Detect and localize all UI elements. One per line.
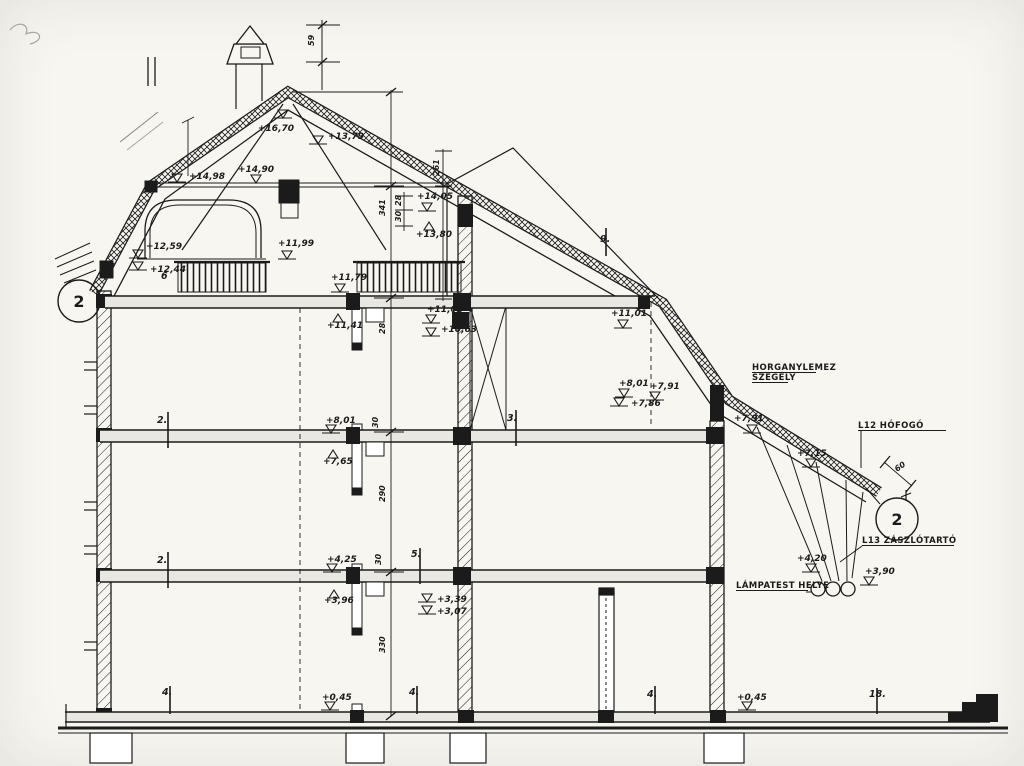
right-entry-steps <box>948 694 998 722</box>
elevation-value: +12,44 <box>150 265 186 275</box>
eave-plate-block <box>100 261 113 278</box>
elevation-marker: +8,01 <box>615 379 649 397</box>
dimension-value: 59 <box>307 34 316 46</box>
elevation-marker: +14,90 <box>238 165 274 183</box>
elevation-value: +13,79 <box>328 132 364 142</box>
elevation-marker: +4,20 <box>797 554 827 572</box>
building-section-drawing: +16,70+13,79+14,90+14,98+14,05+13,80+12,… <box>0 0 1024 766</box>
note-label: L12 HÓFOGÓ <box>858 419 946 431</box>
reference-number: 4. <box>408 687 419 698</box>
beam-boxes <box>366 308 384 596</box>
level-triangle-icon <box>864 577 874 585</box>
level-triangle-icon <box>806 564 816 572</box>
reference-number: 3. <box>507 413 517 424</box>
lintel <box>352 628 362 635</box>
elevation-value: +7,91 <box>650 382 680 392</box>
elevation-marker: +10,63 <box>422 325 477 336</box>
dimension-value: 28 <box>394 194 403 206</box>
reference-number: 18. <box>869 689 886 700</box>
elevation-value: +3,07 <box>437 607 467 617</box>
elevation-marker: +3,07 <box>418 606 467 617</box>
level-triangle-icon <box>742 702 752 710</box>
elevation-marker: +7,65 <box>323 450 353 467</box>
dimension-value: 30 <box>394 210 403 222</box>
reference-number: 5. <box>411 549 421 560</box>
dimension-value: 330 <box>378 636 387 653</box>
annotation-layer: +16,70+13,79+14,90+14,98+14,05+13,80+12,… <box>58 34 956 710</box>
stray-stroke <box>127 122 163 150</box>
elevation-value: +13,80 <box>416 230 452 240</box>
elevation-value: +0,45 <box>322 693 352 703</box>
dimension-value: 30 <box>374 553 383 565</box>
elevation-value: +11,79 <box>331 273 367 283</box>
elevation-value: +12,59 <box>146 242 182 252</box>
elevation-value: +7,15 <box>797 449 827 459</box>
level-triangle-icon <box>618 320 628 328</box>
reference-number: 4. <box>646 689 657 700</box>
elevation-value: +14,98 <box>189 172 225 182</box>
ridge-flue-black <box>279 180 299 203</box>
elevation-value: +7,65 <box>323 457 353 467</box>
elevation-marker: +11,01 <box>611 309 647 328</box>
note-label: SZEGÉLY <box>752 371 796 383</box>
reference-number: 2. <box>157 555 167 566</box>
note-label: HORGANYLEMEZ <box>752 363 836 373</box>
flagholder-leader <box>840 546 862 562</box>
level-triangle-icon <box>426 328 436 336</box>
elevation-value: +11,99 <box>278 239 314 249</box>
scribble <box>10 24 40 44</box>
lintel <box>352 343 362 350</box>
low-wall-d <box>599 588 614 718</box>
detail-bubble: 2 <box>876 498 918 540</box>
reference-number: 4. <box>161 687 172 698</box>
eave-dim-60 <box>880 456 916 492</box>
note-text: LÁMPATEST HELYE <box>736 579 829 591</box>
elevation-marker: +3,39 <box>418 594 467 605</box>
elevation-marker: +7,91 <box>646 382 680 400</box>
level-triangle-icon <box>614 398 624 406</box>
level-triangle-icon <box>424 222 434 230</box>
detail-bubble: 2 <box>58 280 100 322</box>
elevation-marker: +3,90 <box>860 567 895 585</box>
level-triangle-icon <box>619 389 629 397</box>
note-text: HORGANYLEMEZ <box>752 363 836 373</box>
elevation-value: +14,05 <box>417 192 453 202</box>
reference-number: 9. <box>600 234 610 245</box>
dimension-value: 341 <box>378 199 387 216</box>
railing-left <box>178 263 266 292</box>
elevation-value: +4,25 <box>327 555 357 565</box>
level-triangle-icon <box>282 251 292 259</box>
detail-bubble-number: 2 <box>891 510 902 529</box>
elevation-value: +7,91 <box>734 414 764 424</box>
elevation-value: +0,45 <box>737 693 767 703</box>
elevation-marker: +13,79 <box>309 132 364 144</box>
elevation-value: +11,01 <box>611 309 647 319</box>
scanned-drawing-page: +16,70+13,79+14,90+14,98+14,05+13,80+12,… <box>0 0 1024 766</box>
elevation-value: +3,90 <box>865 567 895 577</box>
level-triangle-icon <box>426 315 436 323</box>
elevation-value: +10,63 <box>441 325 477 335</box>
axis-lines <box>300 302 651 710</box>
detail-bubble-number: 2 <box>73 292 84 311</box>
dimension-value: 30 <box>371 416 380 428</box>
elevation-value: +8,01 <box>619 379 649 389</box>
elevation-value: +3,96 <box>324 596 354 606</box>
reference-number: 6 <box>161 271 168 282</box>
elevation-marker: +7,15 <box>797 449 827 467</box>
stair-wall-b <box>458 196 472 718</box>
right-wall-c-top-black <box>710 385 724 421</box>
second-floor-slab <box>100 430 724 442</box>
dimension-value: 261 <box>432 159 441 176</box>
elevation-value: +11,41 <box>327 321 363 331</box>
level-triangle-icon <box>251 175 261 183</box>
pencil-marks <box>10 24 163 283</box>
lintel <box>352 488 362 495</box>
ground <box>58 694 1008 763</box>
dimension-value: 290 <box>378 485 387 502</box>
level-triangle-icon <box>325 702 335 710</box>
foundations <box>90 733 744 763</box>
elevation-value: +8,01 <box>326 416 356 426</box>
note-text: SZEGÉLY <box>752 371 796 383</box>
note-label: LÁMPATEST HELYE <box>736 579 829 591</box>
chimney-cap-top <box>236 26 264 44</box>
elevation-value: +3,39 <box>437 595 467 605</box>
dimension-value: 28 <box>378 322 387 334</box>
level-triangle-icon <box>806 459 816 467</box>
elevation-marker: +0,45 <box>321 693 352 710</box>
elevation-value: +16,70 <box>258 124 294 134</box>
elevation-value: +11,03 <box>427 305 463 315</box>
first-floor-slab <box>100 570 724 582</box>
elevation-marker: +12,59 <box>129 242 182 258</box>
note-text: L12 HÓFOGÓ <box>858 419 924 431</box>
left-exterior-wall <box>97 291 111 718</box>
stray-stroke <box>120 112 158 142</box>
ground-slab <box>65 712 985 722</box>
elevation-marker: +0,45 <box>737 693 767 710</box>
elevation-value: +4,20 <box>797 554 827 564</box>
level-triangle-icon <box>133 262 143 270</box>
level-triangle-icon <box>422 203 432 211</box>
level-triangle-icon <box>335 284 345 292</box>
ridge-flue-box <box>281 203 298 218</box>
elevation-marker: +7,91 <box>734 414 764 433</box>
railing-right <box>357 263 461 292</box>
chimney <box>227 26 273 109</box>
left-wall-ticks <box>84 362 97 650</box>
purlin-block <box>145 181 157 192</box>
lamp-circle <box>841 582 855 596</box>
interior-wall-a <box>352 308 362 714</box>
top-dim-chain <box>306 20 340 90</box>
stair-wall-b-top-black <box>458 204 473 227</box>
level-triangle-icon <box>422 594 432 602</box>
level-triangle-icon <box>422 606 432 614</box>
elevation-value: +14,90 <box>238 165 274 175</box>
elevation-marker: +11,99 <box>278 239 314 259</box>
eave-sketch-strokes <box>55 243 96 283</box>
elevation-marker: +12,44 <box>129 262 186 275</box>
elevation-marker: +14,98 <box>168 172 225 182</box>
reference-number: 2. <box>157 415 167 426</box>
elevation-marker: +3,96 <box>324 590 354 606</box>
elevation-marker: +14,05 <box>417 192 453 211</box>
